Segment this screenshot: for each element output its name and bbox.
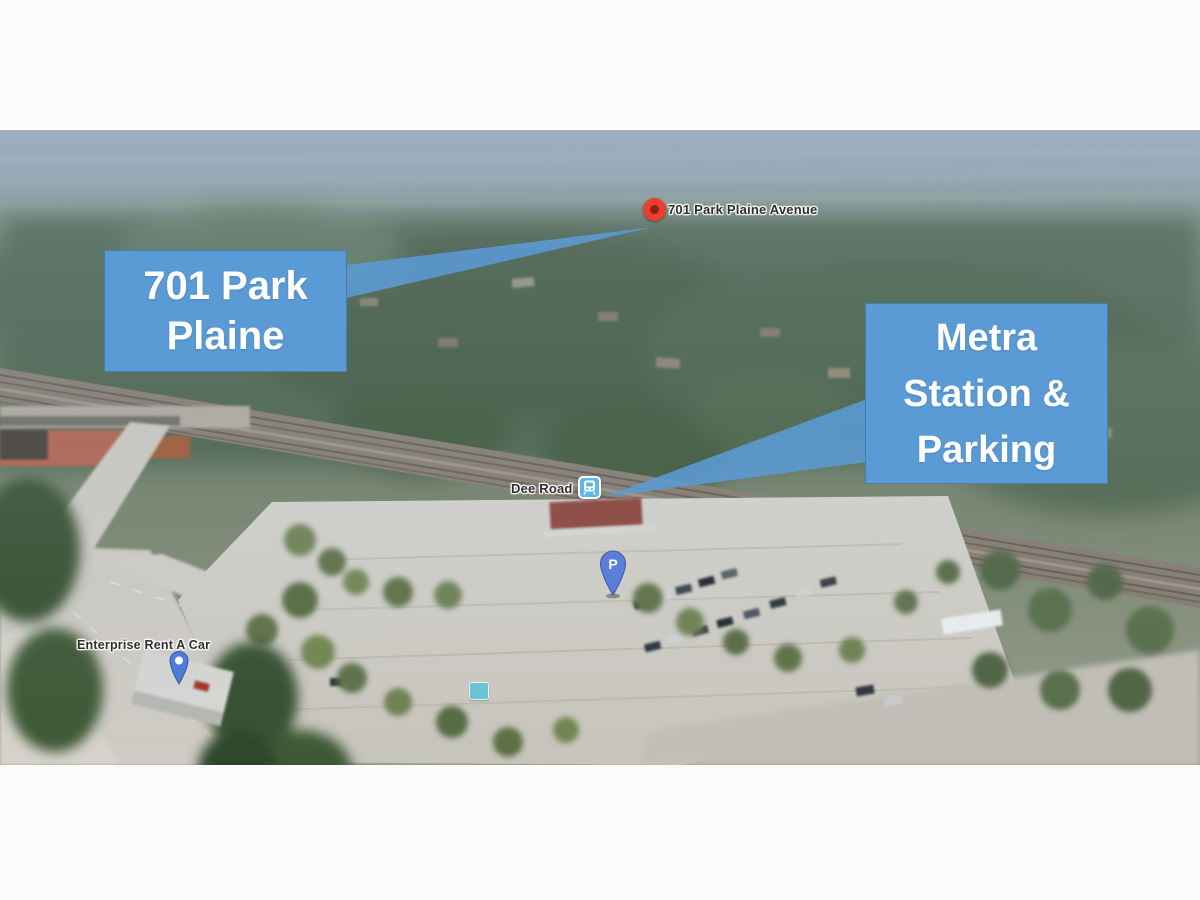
metra-station-label: Dee Road: [511, 481, 573, 496]
transit-stop-icon: [469, 682, 489, 700]
parking-pin: P: [598, 549, 628, 599]
map-pin-701-park-plaine: [643, 198, 666, 221]
callout-line: Parking: [917, 422, 1056, 478]
train-station-icon: [578, 476, 601, 499]
callout-line: Metra: [936, 310, 1037, 366]
enterprise-label: Enterprise Rent A Car: [77, 638, 210, 652]
parking-pin-glyph: P: [608, 556, 617, 572]
callout-metra-station-parking: Metra Station & Parking: [865, 303, 1108, 484]
train-icon: [583, 480, 596, 495]
callout-pointer-left: [346, 227, 653, 298]
enterprise-pin: [168, 650, 190, 686]
callout-pointer-right: [604, 399, 867, 497]
callout-line: Station &: [903, 366, 1070, 422]
callout-701-park-plaine: 701 Park Plaine: [104, 250, 347, 372]
callout-line: Plaine: [167, 311, 285, 361]
address-pin-label: 701 Park Plaine Avenue: [668, 202, 817, 217]
callout-line: 701 Park: [143, 261, 308, 311]
annotated-aerial-map: 701 Park Plaine Avenue 701 Park Plaine M…: [0, 0, 1200, 900]
